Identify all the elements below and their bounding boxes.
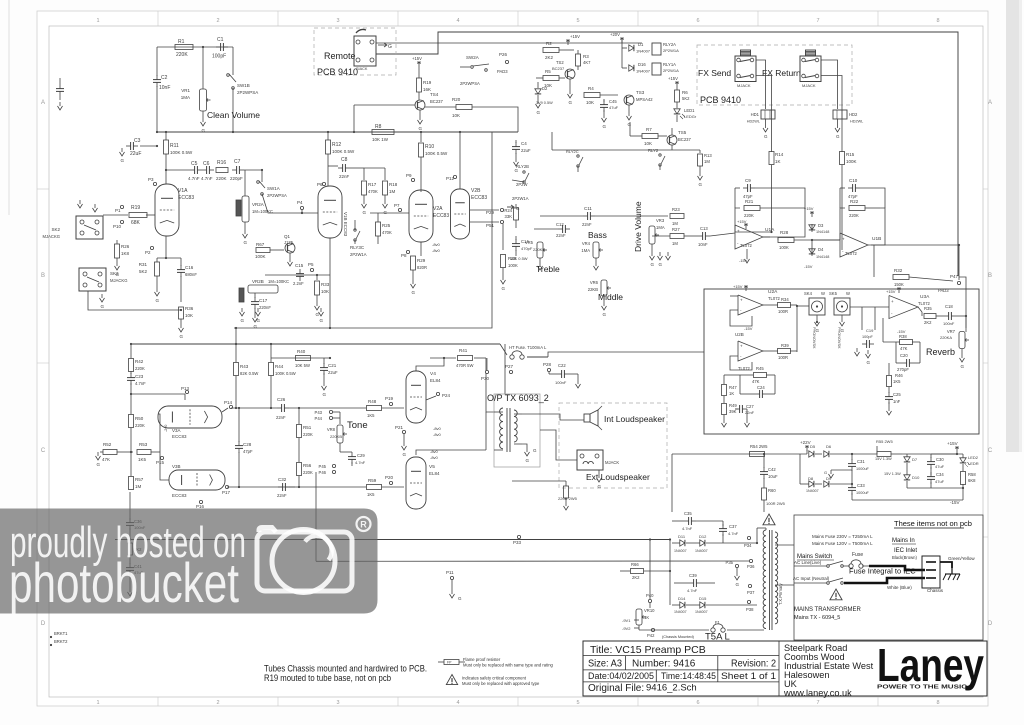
svg-text:EL84: EL84 [429,471,440,476]
svg-text:R60: R60 [768,488,776,493]
svg-text:4.7nF: 4.7nF [355,460,366,465]
svg-text:R42: R42 [135,359,144,364]
svg-text:G: G [516,206,520,211]
svg-text:3: 3 [336,700,339,706]
svg-text:R6: R6 [682,90,688,95]
svg-text:D10: D10 [912,475,920,480]
svg-text:100R 2W5: 100R 2W5 [766,501,786,506]
svg-text:4.7nF: 4.7nF [201,176,213,181]
svg-text:P28: P28 [543,362,552,367]
svg-text:Ext Loudspeaker: Ext Loudspeaker [586,472,650,482]
svg-text:Must only be replaced with sam: Must only be replaced with same type and… [463,662,554,667]
svg-text:F1: F1 [715,620,721,625]
svg-text:4: 4 [456,18,459,24]
svg-text:FX Send: FX Send [698,68,731,78]
svg-text:820R: 820R [417,265,427,270]
svg-text:2: 2 [216,700,219,706]
svg-text:P10: P10 [113,224,122,229]
svg-text:C3: C3 [134,138,141,144]
svg-text:-9V1: -9V1 [622,618,631,623]
svg-text:2K2: 2K2 [632,575,640,580]
svg-text:R1: R1 [178,39,185,45]
svg-text:220KB: 220KB [330,434,342,439]
svg-text:PHONOVSK: PHONOVSK [812,327,816,349]
svg-text:3: 3 [336,18,339,24]
svg-text:D16: D16 [638,62,646,67]
svg-text:P19: P19 [385,396,394,401]
svg-text:P13: P13 [181,386,190,391]
svg-text:R8: R8 [375,124,382,130]
svg-text:R44: R44 [275,364,284,369]
svg-text:TL072: TL072 [768,296,781,301]
svg-text:R12: R12 [332,142,341,148]
svg-text:2.2nF: 2.2nF [293,281,304,286]
svg-text:LED2: LED2 [968,455,979,460]
svg-text:G: G [628,122,632,127]
svg-text:R50: R50 [135,416,144,421]
svg-text:+20V: +20V [610,32,620,37]
svg-text:22nF: 22nF [276,415,286,420]
svg-text:R31: R31 [139,262,148,267]
svg-text:MAINS TRANSFORMER: MAINS TRANSFORMER [794,607,862,613]
svg-text:G: G [961,364,965,369]
svg-text:150K: 150K [894,282,904,287]
svg-text:47uF: 47uF [935,464,945,469]
svg-text:A: A [988,100,992,106]
svg-text:G: G [867,360,871,365]
svg-text:R27: R27 [672,227,680,232]
svg-text:SK4: SK4 [804,291,813,296]
svg-text:Flame proof resister: Flame proof resister [463,657,501,662]
svg-text:P51: P51 [486,223,495,228]
svg-text:Clean Volume: Clean Volume [207,110,260,120]
svg-text:1: 1 [96,700,99,706]
svg-text:TL072: TL072 [738,366,751,371]
svg-text:C22: C22 [558,363,566,368]
svg-text:P17: P17 [222,490,231,495]
svg-text:VR3: VR3 [656,218,665,223]
svg-text:Green/Yellow: Green/Yellow [948,556,975,561]
svg-text:4.7nF: 4.7nF [135,381,146,386]
svg-text:O/P TX 6093_2: O/P TX 6093_2 [487,393,549,403]
svg-text:Fuse Integral to IEC: Fuse Integral to IEC [849,567,916,576]
svg-text:Indicates safety critical comp: Indicates safety critical component [462,675,527,680]
svg-text:RLY2A: RLY2A [663,42,676,47]
svg-text:G: G [241,318,245,323]
svg-text:1MA: 1MA [656,225,665,230]
svg-text:C28: C28 [243,442,252,447]
svg-text:P2: P2 [145,250,151,255]
svg-text:Original File:: Original File: [588,683,644,694]
svg-text:+15V: +15V [733,284,743,289]
svg-text:Bass: Bass [588,230,607,240]
svg-text:C34: C34 [936,472,944,477]
svg-text:4K7: 4K7 [583,60,591,65]
svg-text:P9: P9 [406,173,412,178]
svg-text:1MA: 1MA [581,248,590,253]
svg-text:A: A [41,100,45,106]
svg-text:G: G [254,324,258,329]
svg-text:C35: C35 [684,511,692,516]
svg-text:P5: P5 [308,262,314,267]
svg-text:Black(Brown): Black(Brown) [892,555,918,560]
svg-text:9416_2.Sch: 9416_2.Sch [646,683,697,694]
svg-text:C5: C5 [191,161,198,167]
svg-text:G: G [116,272,120,277]
svg-text:+15V: +15V [804,206,814,211]
svg-text:LED1: LED1 [684,108,695,113]
svg-text:R15: R15 [846,152,855,157]
svg-text:SW1B: SW1B [237,83,250,88]
svg-text:P11: P11 [446,570,454,575]
svg-text:82K 0.5W: 82K 0.5W [240,371,258,376]
svg-text:22uF: 22uF [130,151,141,157]
svg-text:P36: P36 [747,564,755,569]
svg-text:ECC83: ECC83 [178,195,194,201]
svg-text:TL072: TL072 [845,251,858,256]
svg-text:B: B [41,273,45,279]
svg-text:220KB: 220KB [533,247,545,252]
svg-text:-8v0: -8v0 [430,455,439,460]
svg-text:220nF: 220nF [259,305,271,310]
svg-text:1K5: 1K5 [138,457,147,462]
svg-text:VR4: VR4 [582,241,591,246]
svg-text:R67: R67 [256,242,265,247]
svg-text:MJACKG: MJACKG [43,234,60,239]
svg-text:FP: FP [447,661,452,665]
svg-text:BRKT1: BRKT1 [54,631,68,636]
svg-text:R59: R59 [368,478,377,483]
svg-text:G: G [257,318,261,323]
svg-text:2P2W: 2P2W [516,182,527,187]
svg-text:1K5: 1K5 [893,379,901,384]
svg-text:22uF: 22uF [521,148,531,153]
svg-text:10nF: 10nF [698,242,708,247]
svg-text:1K: 1K [644,615,649,620]
svg-text:22KB: 22KB [588,287,598,292]
svg-text:SIACK: SIACK [356,67,368,71]
svg-text:BC237: BC237 [552,66,565,71]
svg-text:VR5: VR5 [525,240,534,245]
svg-text:Q1: Q1 [284,234,291,239]
svg-text:www.laney.co.uk: www.laney.co.uk [783,688,852,698]
svg-text:C4: C4 [521,141,527,146]
svg-text:C13: C13 [700,226,708,231]
svg-text:C6: C6 [203,161,210,167]
svg-text:1M: 1M [135,484,142,489]
svg-text:100K: 100K [255,254,266,259]
svg-text:-8v0: -8v0 [433,432,442,437]
svg-text:Must only be replaced with app: Must only be replaced with approved type [462,681,540,686]
svg-text:C: C [41,448,46,454]
svg-text:G: G [824,470,827,475]
svg-text:+: + [891,299,894,304]
svg-text:4.7nF: 4.7nF [682,526,693,531]
svg-text:-8v0: -8v0 [433,426,442,431]
svg-text:P30: P30 [481,376,490,381]
svg-text:G: G [403,452,407,457]
svg-text:39K: 39K [729,409,737,414]
svg-text:1M: 1M [704,159,710,164]
svg-text:C27: C27 [746,404,754,409]
svg-text:RLY3C: RLY3C [350,245,365,250]
svg-text:100K: 100K [846,159,857,164]
svg-text:PHONOVSK: PHONOVSK [837,327,841,349]
svg-text:4.7nF: 4.7nF [188,176,200,181]
svg-text:V4: V4 [430,371,436,377]
svg-text:47K: 47K [102,457,110,462]
svg-text:R45: R45 [756,366,764,371]
svg-text:C7: C7 [234,159,241,165]
svg-text:100R: 100R [778,309,788,314]
svg-text:P16: P16 [196,504,205,509]
svg-text:LEDGr: LEDGr [684,114,697,119]
svg-text:22nF: 22nF [582,222,592,227]
svg-text:C23: C23 [135,374,144,379]
svg-text:1M=100KC: 1M=100KC [268,279,289,284]
svg-text:G: G [659,262,663,267]
svg-text:47uF: 47uF [609,105,619,110]
svg-text:G: G [412,290,416,295]
svg-text:P44: P44 [315,416,323,421]
svg-text:ECC83: ECC83 [471,195,487,201]
svg-text:C39: C39 [689,573,697,578]
svg-text:100K 0.5W: 100K 0.5W [275,371,296,376]
svg-text:BRKT2: BRKT2 [54,639,68,644]
svg-text:3V9 0.5W: 3V9 0.5W [536,101,553,105]
svg-text:+15V: +15V [412,56,422,61]
svg-text:FX Return: FX Return [762,68,801,78]
svg-text:ECC83: ECC83 [433,213,449,219]
svg-text:P24: P24 [442,393,451,398]
svg-text:D1: D1 [638,42,644,47]
svg-text:R38: R38 [899,334,907,339]
svg-text:Title: VC15 Preamp PCB: Title: VC15 Preamp PCB [590,644,706,656]
svg-text:Sheet 1 of 1: Sheet 1 of 1 [721,671,776,682]
svg-text:W: W [821,291,825,296]
svg-text:470R 5W: 470R 5W [456,363,474,368]
svg-text:P37: P37 [747,590,755,595]
svg-text:T.X.Primary: T.X.Primary [778,582,783,605]
svg-text:G: G [598,484,602,489]
svg-text:G: G [156,298,160,303]
svg-text:6: 6 [696,700,699,706]
svg-text:Mains Fuse 120V = T500mA L: Mains Fuse 120V = T500mA L [812,541,873,546]
svg-text:R34: R34 [781,297,789,302]
svg-text:R25: R25 [382,223,391,228]
svg-text:270pF: 270pF [897,367,909,372]
svg-text:15V 1.3W: 15V 1.3W [884,472,901,476]
svg-text:10K 1W: 10K 1W [372,137,389,142]
svg-text:P45: P45 [319,464,327,469]
svg-text:R11: R11 [170,143,179,149]
svg-text:D7: D7 [912,457,918,462]
svg-text:1: 1 [96,18,99,24]
svg-text:D: D [988,621,993,627]
svg-text:VR2A: VR2A [252,202,264,207]
svg-text:R4: R4 [588,86,594,91]
svg-text:P26: P26 [499,52,508,57]
svg-text:P6: P6 [317,182,323,187]
svg-text:AC Line(Live): AC Line(Live) [794,560,822,565]
svg-text:100K 0.5W: 100K 0.5W [332,149,355,154]
svg-text:R32: R32 [894,268,903,273]
svg-text:G: G [526,458,530,463]
svg-text:P1: P1 [115,208,121,213]
svg-text:10K: 10K [586,100,594,105]
svg-text:P38: P38 [746,607,754,612]
svg-text:R52: R52 [103,442,112,447]
svg-text:P47: P47 [950,274,959,279]
svg-text:R17: R17 [368,182,377,187]
svg-text:R2: R2 [546,41,552,46]
svg-text:P34: P34 [744,543,752,548]
svg-text:220K: 220K [135,423,145,428]
svg-text:10K 0.5W: 10K 0.5W [510,256,528,261]
svg-text:C33: C33 [857,483,865,488]
svg-text:RLY2C: RLY2C [566,149,579,154]
svg-text:C16: C16 [185,265,194,270]
svg-text:D: D [41,621,46,627]
svg-text:U1B: U1B [872,236,881,242]
svg-text:G: G [244,240,248,245]
svg-text:220K: 220K [135,366,145,371]
svg-text:G: G [836,134,840,139]
svg-text:Mains In: Mains In [892,538,915,544]
svg-text:220pF: 220pF [230,176,243,181]
svg-text:G: G [569,100,573,105]
svg-text:TS3: TS3 [636,90,645,95]
svg-text:C15: C15 [295,263,304,268]
svg-text:Mains Fuse 230V = T250mA L: Mains Fuse 230V = T250mA L [812,534,873,539]
svg-text:1N4007: 1N4007 [806,489,819,493]
svg-text:MJACK: MJACK [605,460,619,465]
svg-text:(Chassis Mounted): (Chassis Mounted) [662,635,695,639]
svg-text:R28: R28 [780,230,789,235]
svg-text:MJACK: MJACK [737,83,751,88]
svg-text:P35: P35 [726,560,734,565]
svg-text:P20: P20 [385,475,394,480]
svg-text:2K2: 2K2 [545,55,554,60]
svg-text:IEC Inlet: IEC Inlet [894,548,917,554]
svg-text:33K: 33K [505,214,513,219]
svg-text:HD2: HD2 [849,112,858,117]
svg-text:2P2WPSA: 2P2WPSA [267,193,287,198]
svg-text:VR2B: VR2B [252,279,264,284]
svg-text:MJACKG: MJACKG [110,278,127,283]
svg-text:1K8: 1K8 [121,251,130,256]
svg-text:G: G [363,210,367,215]
svg-text:Time:14:48:45: Time:14:48:45 [661,671,716,682]
svg-text:470K: 470K [368,189,378,194]
svg-text:R47: R47 [729,385,737,390]
svg-text:Tubes Chassis mounted and hard: Tubes Chassis mounted and hardwired to P… [264,664,427,674]
svg-text:J175: J175 [284,240,294,245]
svg-text:R40: R40 [297,349,306,354]
svg-text:U3A: U3A [920,294,930,300]
svg-text:+: + [740,298,743,303]
svg-text:HT Fuse. T100mA L: HT Fuse. T100mA L [509,345,547,350]
svg-text:D5: D5 [810,444,816,449]
svg-text:22nF: 22nF [339,174,350,179]
svg-text:VR7: VR7 [947,329,956,334]
svg-text:68K: 68K [131,220,141,226]
svg-text:BC237: BC237 [678,137,691,142]
svg-text:V3B: V3B [172,464,181,469]
svg-text:1N4148: 1N4148 [816,230,829,234]
svg-text:G: G [603,312,607,317]
svg-text:C37: C37 [729,524,737,529]
svg-text:R3: R3 [583,54,589,59]
svg-text:G: G [699,182,703,187]
svg-text:Int Loudspeaker: Int Loudspeaker [604,414,665,424]
svg-text:D3: D3 [818,223,824,228]
svg-text:P12: P12 [446,176,455,181]
svg-text:-8v0: -8v0 [432,248,441,253]
svg-text:G: G [651,262,655,267]
svg-text:5K2: 5K2 [139,269,148,274]
svg-text:100pF: 100pF [862,335,873,339]
svg-text:G: G [502,286,506,291]
svg-text:2P2WPSA: 2P2WPSA [460,81,480,86]
svg-text:LEDR: LEDR [968,461,979,466]
svg-text:+15V: +15V [737,219,747,224]
svg-text:C2: C2 [161,75,168,81]
svg-text:2P2WPSA: 2P2WPSA [237,90,258,95]
svg-text:C20: C20 [900,353,908,358]
svg-text:100K 0.5W: 100K 0.5W [425,151,448,156]
svg-text:C9: C9 [745,178,751,183]
svg-text:G: G [419,126,423,131]
svg-text:R57: R57 [135,477,144,482]
svg-text:8: 8 [936,700,939,706]
svg-text:2P2W1A: 2P2W1A [512,196,529,201]
svg-text:1000uF: 1000uF [856,467,870,471]
svg-text:P29: P29 [486,210,495,215]
svg-text:-15V: -15V [804,264,813,269]
svg-text:10K 5W: 10K 5W [295,363,310,368]
svg-text:HD1: HD1 [751,112,760,117]
svg-text:R5: R5 [545,69,551,74]
svg-text:C8: C8 [341,157,348,163]
svg-text:Middle: Middle [598,292,623,302]
svg-text:T5A L: T5A L [705,632,730,643]
svg-text:G: G [603,124,607,129]
svg-text:G: G [121,158,125,163]
svg-text:4.7nF: 4.7nF [687,588,698,593]
svg-text:C17: C17 [259,298,268,303]
svg-text:These items not on pcb: These items not on pcb [894,519,972,528]
svg-text:PCB 9410: PCB 9410 [317,67,358,77]
svg-text:470K: 470K [382,230,392,235]
svg-text:220K: 220K [303,470,313,475]
svg-text:G: G [736,582,740,587]
svg-text:47uF: 47uF [935,479,945,484]
svg-text:R23: R23 [672,207,680,212]
svg-text:10K: 10K [644,141,652,146]
svg-text:100pF: 100pF [212,54,226,60]
svg-text:R54 2W5: R54 2W5 [750,444,768,449]
svg-text:-15V: -15V [739,258,748,263]
svg-text:7: 7 [816,700,819,706]
svg-text:Fuse: Fuse [852,552,863,558]
svg-text:P7: P7 [394,203,400,208]
svg-text:Number: 9416: Number: 9416 [632,659,696,670]
svg-text:+: + [740,344,743,349]
svg-text:+15V: +15V [570,34,580,39]
svg-text:-8v0: -8v0 [432,242,441,247]
svg-text:1000uF: 1000uF [856,491,870,495]
